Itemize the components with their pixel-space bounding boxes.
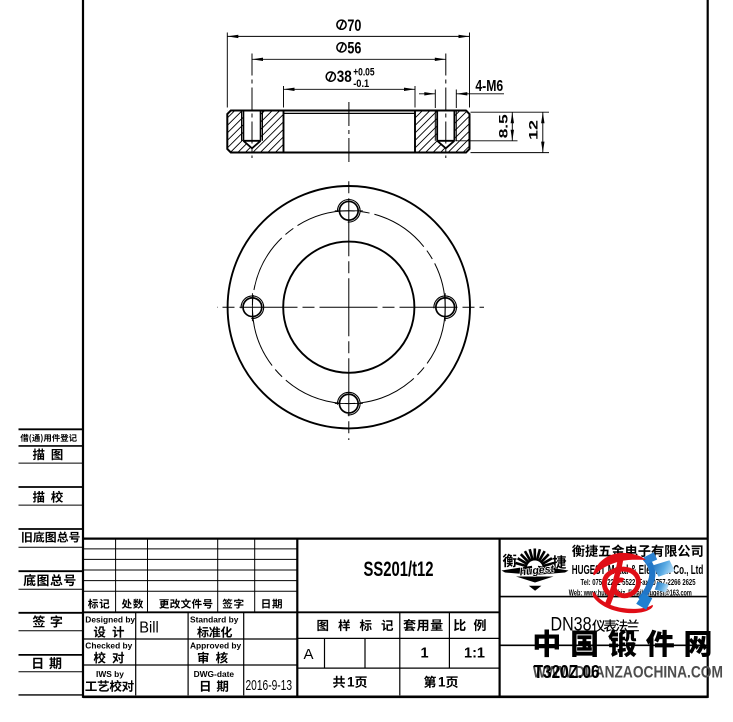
svg-text:Designed by: Designed by bbox=[85, 615, 135, 625]
svg-text:12: 12 bbox=[527, 120, 541, 140]
svg-text:+0.05: +0.05 bbox=[353, 67, 374, 79]
svg-text:SS201/t12: SS201/t12 bbox=[364, 558, 434, 581]
svg-text:Checked by: Checked by bbox=[85, 641, 132, 651]
svg-text:IWS by: IWS by bbox=[96, 669, 124, 679]
svg-text:56: 56 bbox=[347, 40, 361, 58]
svg-text:70: 70 bbox=[347, 17, 361, 35]
svg-text:8.5: 8.5 bbox=[497, 114, 511, 138]
svg-text:A: A bbox=[304, 646, 314, 663]
svg-text:Approved by: Approved by bbox=[190, 641, 242, 651]
svg-text:-0.1: -0.1 bbox=[353, 78, 369, 90]
svg-text:38: 38 bbox=[337, 68, 352, 86]
svg-text:T320Z.06: T320Z.06 bbox=[534, 662, 600, 682]
svg-text:2016-9-13: 2016-9-13 bbox=[246, 677, 293, 694]
svg-text:1: 1 bbox=[421, 646, 429, 662]
svg-text:DWG-date: DWG-date bbox=[194, 669, 235, 679]
svg-text:1:1: 1:1 bbox=[464, 646, 485, 662]
svg-text:4-M6: 4-M6 bbox=[475, 78, 503, 95]
svg-text:Bill: Bill bbox=[139, 619, 159, 636]
svg-text:Standard by: Standard by bbox=[190, 615, 239, 625]
svg-text:1: 1 bbox=[347, 674, 355, 689]
svg-text:1: 1 bbox=[438, 674, 446, 689]
